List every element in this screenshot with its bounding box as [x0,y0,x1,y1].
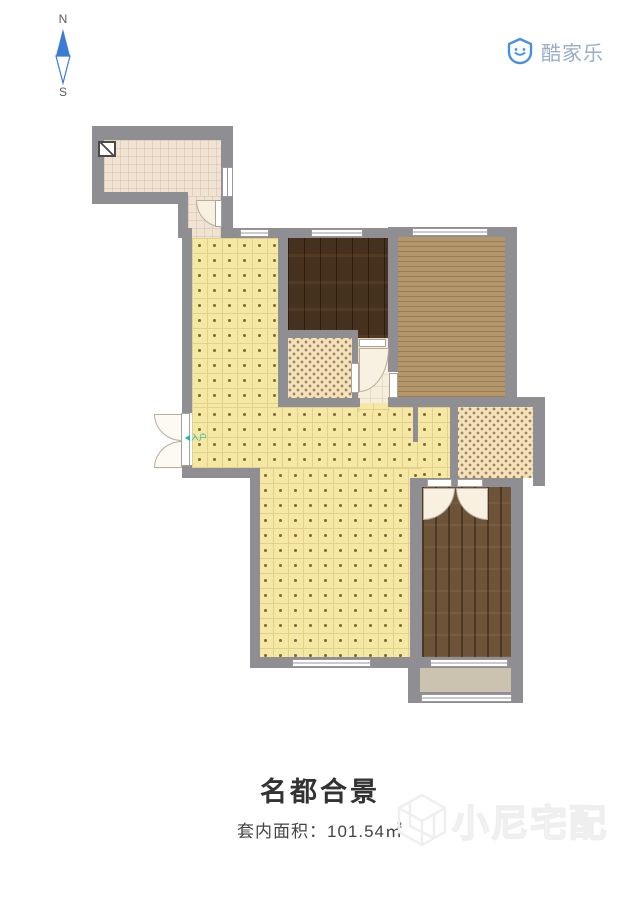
window [311,229,363,237]
window [412,228,488,236]
wall [278,398,360,407]
wall [388,397,545,407]
entry-door-arc-upper [154,414,182,441]
wall-stub [413,407,418,442]
wall [92,126,233,140]
wall [388,227,398,372]
compass: N S [50,13,76,99]
door-leaf [427,479,452,487]
entry-marker: 入户 [185,433,207,442]
window [222,167,233,197]
wall [250,468,260,667]
compass-south-label: S [50,86,76,99]
window [421,694,512,702]
wall [533,397,545,486]
wall [182,228,192,413]
watermark: 小尼宅配 [396,792,608,848]
kujiale-logo: 酷家乐 [505,36,604,66]
kitchen-floor [458,405,533,478]
window [292,659,371,667]
door-leaf [215,200,222,227]
wall [511,478,523,668]
compass-north-label: N [50,13,76,26]
wall [182,468,260,478]
entry-label: 入户 [191,433,207,442]
north-arrow-icon [55,27,71,85]
bathroom-door-leaf [351,363,359,393]
wall [278,330,358,338]
window [240,229,269,237]
vent-symbol [98,141,116,157]
floorplan-page: N S 酷家乐 [0,0,640,905]
entry-arrow-icon [185,435,190,441]
door-leaf [457,479,483,487]
bedroom-north-floor [288,238,388,338]
bedroom-east-door-leaf [389,373,398,398]
bedroom-east-floor [398,237,505,397]
window [430,659,508,667]
wall [505,227,517,407]
logo-text: 酷家乐 [541,37,604,66]
storage-room-floor [104,140,222,196]
door-leaf [359,339,386,347]
balcony-floor [420,668,511,693]
wall [450,407,458,478]
entry-door-arc-lower [154,441,182,468]
watermark-cube-icon [396,792,448,848]
living-room-floor-main [258,468,422,663]
wall [278,228,288,407]
watermark-text: 小尼宅配 [452,793,608,847]
wall [410,478,422,668]
logo-shield-icon [505,36,535,66]
wall [92,192,185,204]
bathroom-floor [286,338,352,398]
